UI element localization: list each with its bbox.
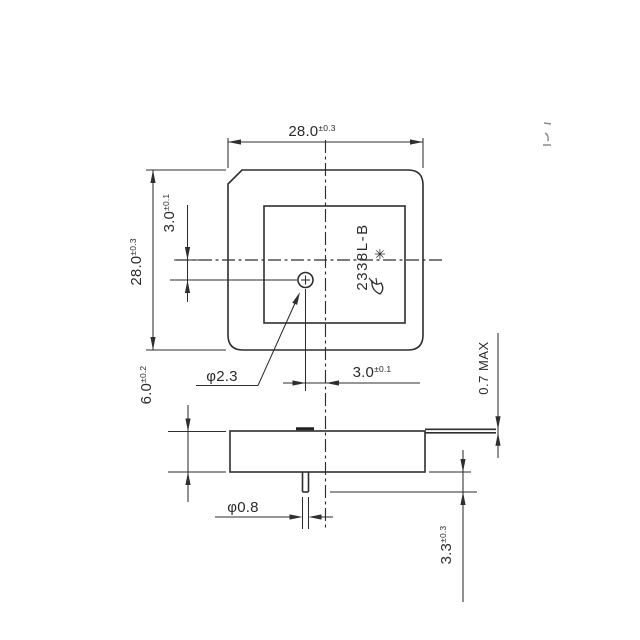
side-body-outline — [230, 431, 425, 472]
dim-feed-offset-vertical-label: 3.0±0.1 — [161, 194, 178, 233]
part-marking: 2338L-B ✳ — [354, 223, 388, 294]
scan-artifact — [543, 123, 551, 145]
asterisk-icon: ✳ — [372, 248, 388, 260]
part-number-text: 2338L-B — [354, 223, 371, 290]
dim-pin-length-label: 3.3±0.3 — [438, 526, 455, 565]
antenna-technical-drawing: 28.0±0.3 28.0±0.3 3.0±0.1 3.0±0.1 φ2.3 2… — [0, 0, 640, 640]
dim-feed-offset-horizontal-label: 3.0±0.1 — [353, 364, 392, 381]
dim-tab-thickness: 0.7 MAX — [476, 333, 501, 458]
dim-tab-thickness-label: 0.7 MAX — [476, 341, 491, 394]
dim-pin-diameter: φ0.8 — [215, 499, 333, 520]
dim-feed-hole-diameter: φ2.3 — [196, 292, 300, 386]
dim-body-thickness: 6.0±0.2 — [138, 366, 226, 502]
logo-icon — [369, 278, 383, 294]
dim-pin-diameter-label: φ0.8 — [227, 499, 258, 516]
dim-feed-offset-vertical: 3.0±0.1 — [161, 194, 297, 302]
side-view — [230, 429, 496, 529]
electrode-outline — [264, 206, 405, 323]
feed-pin — [303, 472, 309, 492]
dim-body-thickness-label: 6.0±0.2 — [138, 366, 155, 405]
dim-feed-offset-horizontal: 3.0±0.1 — [283, 289, 420, 391]
drawing-svg: 28.0±0.3 28.0±0.3 3.0±0.1 3.0±0.1 φ2.3 2… — [0, 0, 640, 640]
dim-height-left-label: 28.0±0.3 — [128, 238, 145, 285]
dim-feed-hole-diameter-label: φ2.3 — [206, 368, 237, 385]
dim-width-top-label: 28.0±0.3 — [288, 123, 335, 140]
